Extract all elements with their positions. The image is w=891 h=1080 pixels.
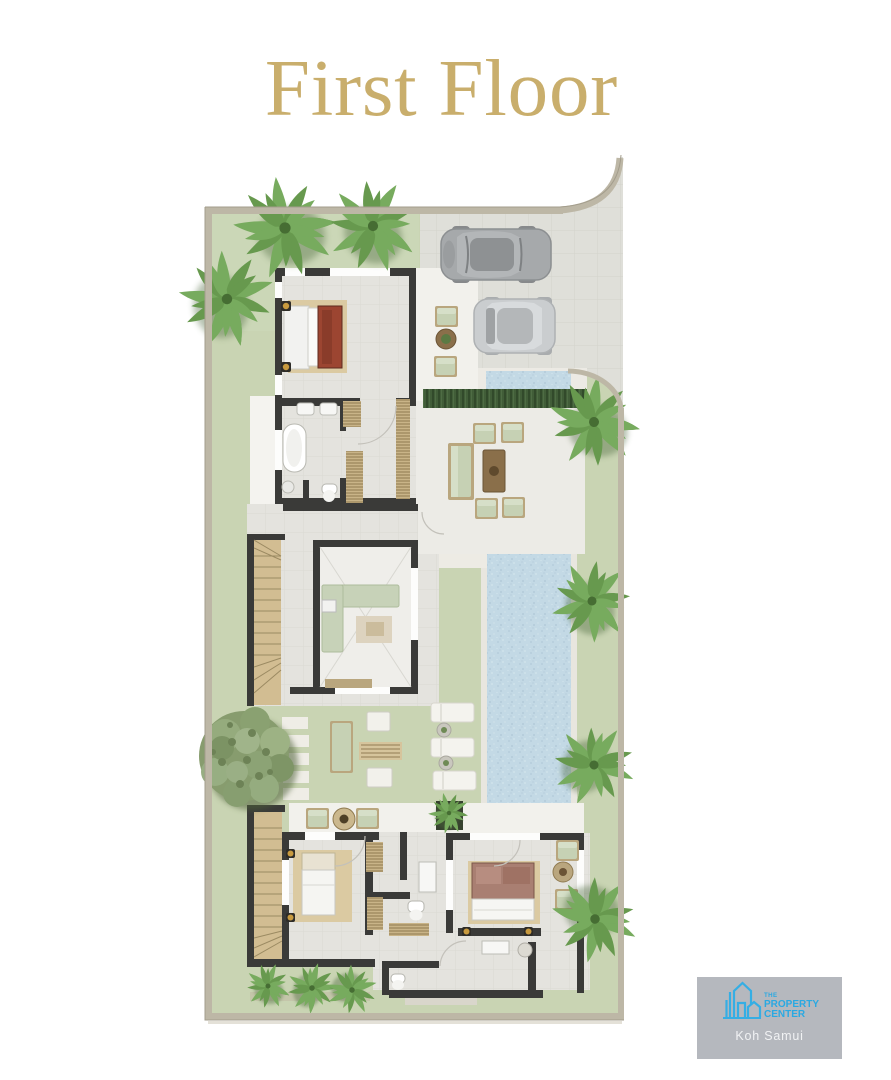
svg-text:THE: THE — [764, 992, 778, 999]
svg-text:CENTER: CENTER — [764, 1009, 806, 1020]
